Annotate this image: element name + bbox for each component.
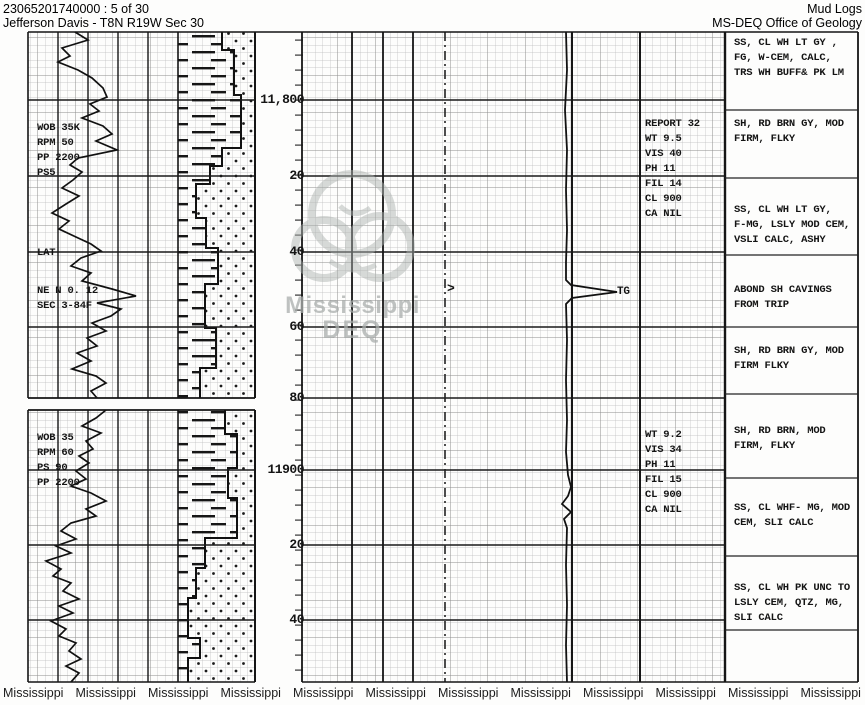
lith-desc-2: SH, RD BRN GY, MOD FIRM, FLKY bbox=[734, 117, 860, 147]
lat-note: LAT bbox=[37, 246, 55, 261]
footer-watermark: Mississippi bbox=[511, 686, 571, 700]
depth-label: 20 bbox=[252, 168, 304, 183]
mud-report-lower: WT 9.2 VIS 34 PH 11 FIL 15 CL 900 CA NIL bbox=[645, 428, 682, 518]
footer-watermark: Mississippi bbox=[148, 686, 208, 700]
survey-note: NE N 0. 12 SEC 3-84F bbox=[37, 284, 98, 314]
depth-label: 11,800 bbox=[252, 92, 304, 107]
lith-desc-5: SH, RD BRN GY, MOD FIRM FLKY bbox=[734, 344, 860, 374]
footer-watermark: Mississippi bbox=[801, 686, 861, 700]
total-gas-label: TG bbox=[617, 285, 630, 300]
deq-logo-icon bbox=[270, 166, 435, 291]
deq-watermark: Mississippi DEQ bbox=[270, 166, 435, 296]
footer-watermark: Mississippi bbox=[728, 686, 788, 700]
footer-watermark: Mississippi bbox=[583, 686, 643, 700]
depth-label: 40 bbox=[252, 244, 304, 259]
mud-log-page: Mississippi DEQ 23065201740000 : 5 of 30… bbox=[0, 0, 865, 705]
footer-watermark: Mississippi bbox=[76, 686, 136, 700]
footer-watermark: Mississippi bbox=[366, 686, 426, 700]
footer-watermark: Mississippi bbox=[221, 686, 281, 700]
depth-label: 80 bbox=[252, 390, 304, 405]
document-id: 23065201740000 : 5 of 30 bbox=[3, 2, 149, 16]
marker-arrow: > bbox=[447, 281, 455, 296]
depth-label: 40 bbox=[252, 612, 304, 627]
left-track-upper bbox=[28, 32, 178, 398]
footer-watermark-row: Mississippi Mississippi Mississippi Miss… bbox=[3, 686, 861, 700]
lith-desc-7: SS, CL WHF- MG, MOD CEM, SLI CALC bbox=[734, 501, 860, 531]
lithology-column-upper bbox=[178, 32, 255, 398]
lithology-column-lower bbox=[178, 410, 255, 682]
well-name: Jefferson Davis - T8N R19W Sec 30 bbox=[3, 16, 204, 30]
lith-desc-4: ABOND SH CAVINGS FROM TRIP bbox=[734, 283, 860, 313]
document-type: Mud Logs bbox=[807, 2, 862, 16]
footer-watermark: Mississippi bbox=[3, 686, 63, 700]
lith-desc-8: SS, CL WH PK UNC TO LSLY CEM, QTZ, MG, S… bbox=[734, 581, 860, 626]
depth-label: 60 bbox=[252, 319, 304, 334]
agency-name: MS-DEQ Office of Geology bbox=[712, 16, 862, 30]
footer-watermark: Mississippi bbox=[656, 686, 716, 700]
lith-desc-3: SS, CL WH LT GY, F-MG, LSLY MOD CEM, VSL… bbox=[734, 203, 860, 248]
lith-desc-1: SS, CL WH LT GY , FG, W-CEM, CALC, TRS W… bbox=[734, 36, 860, 81]
footer-watermark: Mississippi bbox=[438, 686, 498, 700]
footer-watermark: Mississippi bbox=[293, 686, 353, 700]
drill-params-upper: WOB 35K RPM 50 PP 2200 PS5 bbox=[37, 121, 80, 181]
depth-label: 20 bbox=[252, 537, 304, 552]
drill-params-lower: WOB 35 RPM 60 PS 90 PP 2200 bbox=[37, 431, 80, 491]
depth-label: 11900 bbox=[252, 462, 304, 477]
lith-desc-6: SH, RD BRN, MOD FIRM, FLKY bbox=[734, 424, 860, 454]
mud-report-upper: REPORT 32 WT 9.5 VIS 40 PH 11 FIL 14 CL … bbox=[645, 117, 700, 222]
